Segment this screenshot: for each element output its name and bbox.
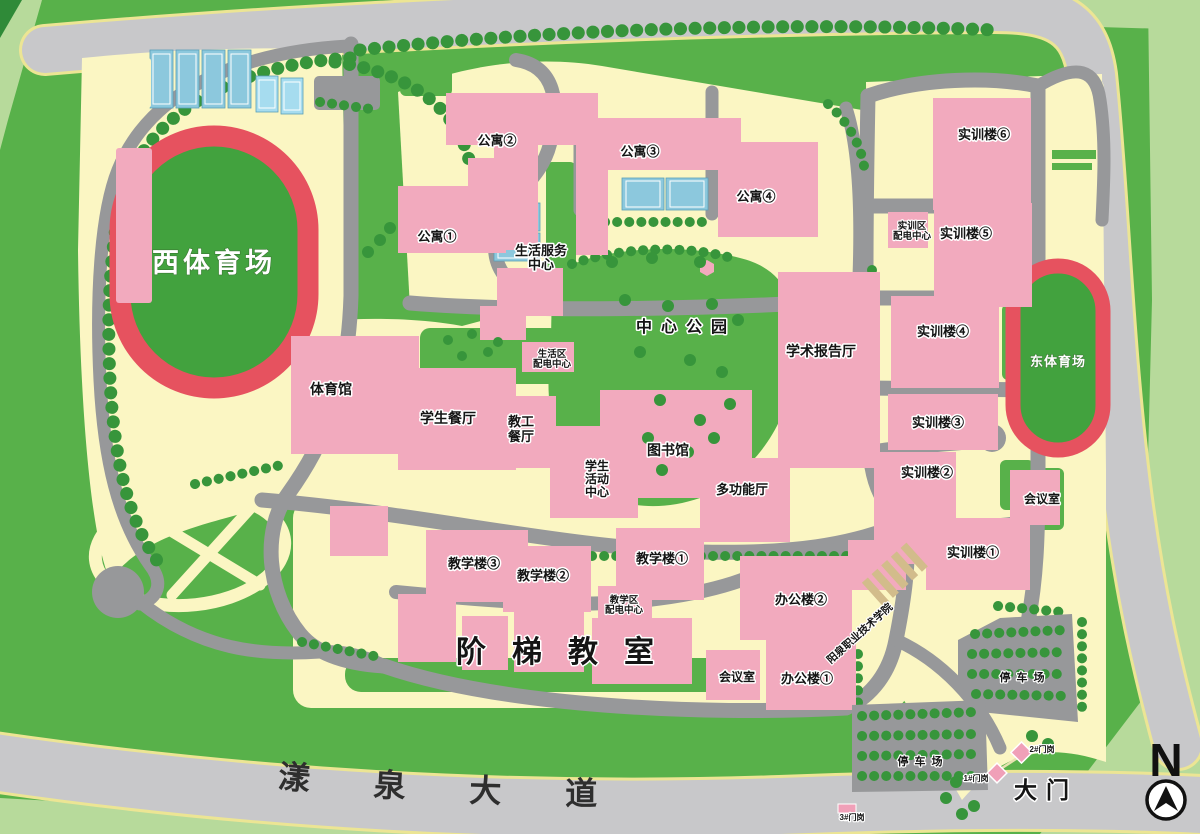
label-apartment-3: 公寓③ xyxy=(620,144,659,159)
building-training-4 xyxy=(891,296,999,388)
building-tiered-b xyxy=(398,594,456,662)
label-parking-right: 停车场 xyxy=(1000,670,1051,684)
label-apartment-2: 公寓② xyxy=(477,133,516,148)
west-grandstand xyxy=(116,148,152,303)
label-training-2: 实训楼② xyxy=(901,465,953,480)
label-staff-dining: 教工餐厅 xyxy=(507,414,534,444)
label-student-center: 学生活动中心 xyxy=(585,458,609,499)
campus-map: 西体育场 东体育场 中心公园 公寓① 公寓② 公寓③ 公寓④ 生活服务中心 生活… xyxy=(0,0,1200,834)
label-meeting-right: 会议室 xyxy=(1024,491,1060,506)
compass-letter: N xyxy=(1149,734,1182,786)
label-student-dining: 学生餐厅 xyxy=(420,410,476,426)
label-office-1: 办公楼① xyxy=(781,671,833,686)
building-tiered-a xyxy=(330,506,388,556)
label-east-stadium: 东体育场 xyxy=(1030,354,1086,369)
label-teaching-3: 教学楼③ xyxy=(447,556,500,571)
label-gate-3: 3#门岗 xyxy=(840,812,865,822)
label-teaching-power: 教学区配电中心 xyxy=(605,594,644,616)
label-life-power: 生活区配电中心 xyxy=(533,348,572,370)
building-academic-hall xyxy=(778,272,880,468)
label-training-power: 实训区配电中心 xyxy=(893,220,932,242)
label-meeting-bottom: 会议室 xyxy=(719,669,755,684)
label-teaching-1: 教学楼① xyxy=(635,551,688,566)
building-apartment-2 xyxy=(446,93,598,145)
label-gate-2: 2#门岗 xyxy=(1030,744,1055,754)
label-gymnasium: 体育馆 xyxy=(310,381,352,397)
building-training-5 xyxy=(934,203,1032,307)
label-apartment-4: 公寓④ xyxy=(736,189,775,204)
campus-map-stage: 西体育场 东体育场 中心公园 公寓① 公寓② 公寓③ 公寓④ 生活服务中心 生活… xyxy=(0,0,1200,834)
label-west-stadium: 西体育场 xyxy=(152,247,276,278)
label-parking-bottom: 停车场 xyxy=(898,754,949,768)
label-main-gate: 大门 xyxy=(1014,777,1078,803)
building-training-6 xyxy=(933,98,1031,210)
building-apartment-2-wing xyxy=(494,145,538,250)
label-training-5: 实训楼⑤ xyxy=(940,226,992,241)
label-office-2: 办公楼② xyxy=(775,592,827,607)
building-multi-hall xyxy=(700,458,790,542)
label-training-3: 实训楼③ xyxy=(912,415,964,430)
compass: N xyxy=(1147,734,1185,819)
label-training-1: 实训楼① xyxy=(947,545,999,560)
label-apartment-1: 公寓① xyxy=(417,229,456,244)
building-apartment-3-wing xyxy=(576,170,608,255)
label-gate-1: 1#门岗 xyxy=(964,773,989,783)
label-central-park: 中心公园 xyxy=(636,317,736,336)
label-multi-hall: 多功能厅 xyxy=(716,482,768,497)
label-library: 图书馆 xyxy=(647,442,689,458)
label-training-6: 实训楼⑥ xyxy=(958,127,1010,142)
label-academic-hall: 学术报告厅 xyxy=(786,343,856,359)
label-training-4: 实训楼④ xyxy=(917,324,969,339)
gate-post-3 xyxy=(838,804,856,813)
label-teaching-2: 教学楼② xyxy=(516,568,569,583)
label-tiered-classrooms: 阶梯教室 xyxy=(456,635,680,669)
building-life-service-annex xyxy=(480,306,526,340)
